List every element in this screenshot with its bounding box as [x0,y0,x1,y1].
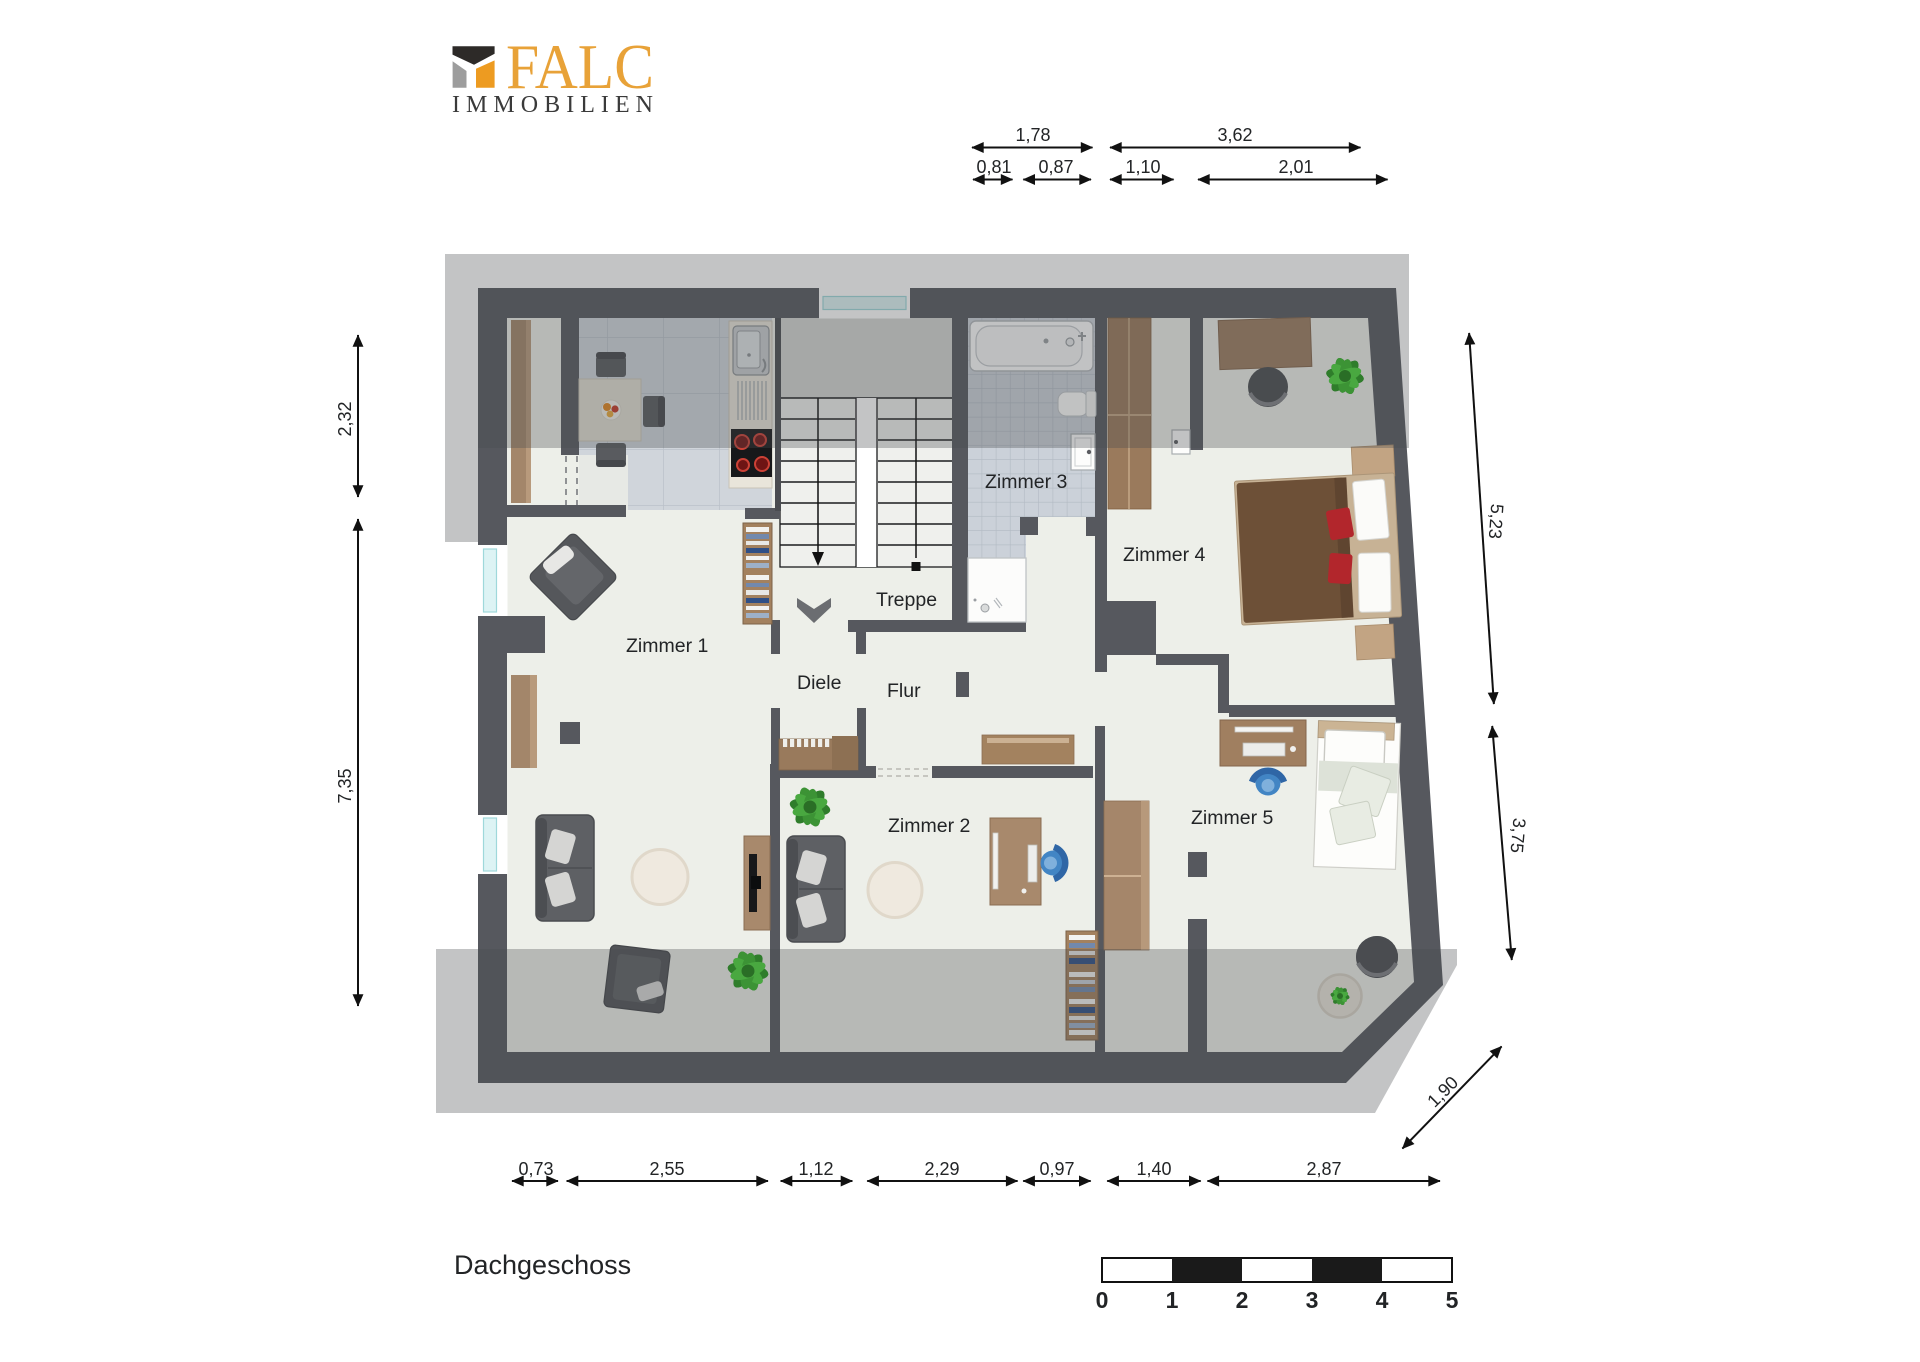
svg-text:0,97: 0,97 [1039,1159,1074,1179]
svg-text:3,62: 3,62 [1217,125,1252,145]
svg-text:2,87: 2,87 [1306,1159,1341,1179]
svg-text:0: 0 [1096,1287,1109,1313]
svg-text:IMMOBILIEN: IMMOBILIEN [452,92,653,118]
svg-text:3,75: 3,75 [1506,817,1529,854]
svg-text:1,10: 1,10 [1125,157,1160,177]
svg-text:1,78: 1,78 [1015,125,1050,145]
svg-text:Flur: Flur [887,680,921,702]
svg-text:1,12: 1,12 [798,1159,833,1179]
svg-text:2: 2 [1236,1287,1249,1313]
svg-text:7,35: 7,35 [335,768,355,803]
svg-text:0,81: 0,81 [976,157,1011,177]
svg-text:Zimmer 1: Zimmer 1 [626,635,708,657]
svg-text:2,29: 2,29 [924,1159,959,1179]
svg-text:5,23: 5,23 [1485,503,1507,539]
svg-text:Zimmer 2: Zimmer 2 [888,815,970,837]
svg-text:0,73: 0,73 [518,1159,553,1179]
svg-text:Diele: Diele [797,672,841,694]
svg-text:2,01: 2,01 [1278,157,1313,177]
svg-text:5: 5 [1446,1287,1459,1313]
svg-text:Zimmer 3: Zimmer 3 [985,471,1067,493]
svg-text:4: 4 [1376,1287,1389,1313]
svg-text:Zimmer 5: Zimmer 5 [1191,807,1273,829]
svg-text:Zimmer 4: Zimmer 4 [1123,544,1205,566]
svg-text:Treppe: Treppe [876,589,937,611]
svg-text:2,55: 2,55 [649,1159,684,1179]
svg-text:3: 3 [1306,1287,1319,1313]
svg-text:1,40: 1,40 [1136,1159,1171,1179]
svg-text:1: 1 [1166,1287,1179,1313]
svg-text:Dachgeschoss: Dachgeschoss [454,1250,631,1280]
svg-text:0,87: 0,87 [1038,157,1073,177]
svg-text:2,32: 2,32 [335,401,355,436]
